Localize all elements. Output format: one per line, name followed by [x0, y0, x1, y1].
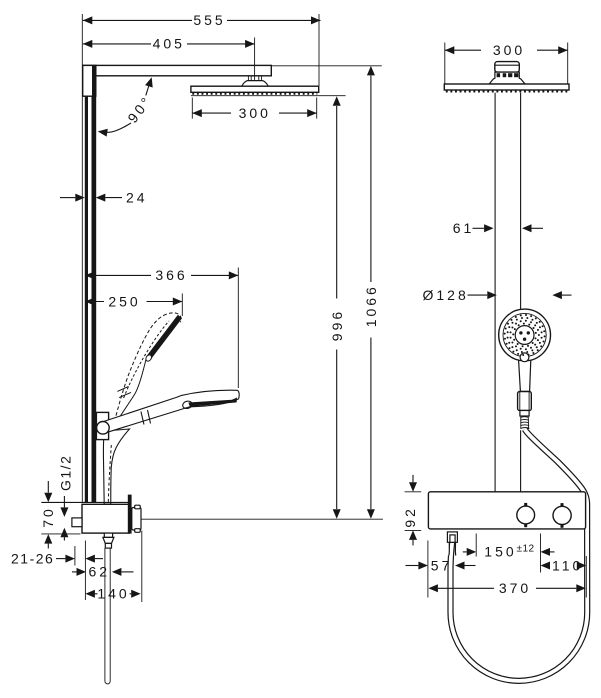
svg-text:21-26: 21-26	[11, 550, 54, 566]
svg-text:1066: 1066	[363, 284, 379, 327]
svg-text:70: 70	[40, 506, 56, 528]
svg-text:24: 24	[126, 189, 148, 205]
svg-text:300: 300	[493, 42, 525, 58]
svg-text:140: 140	[97, 586, 129, 602]
svg-text:±12: ±12	[517, 544, 535, 555]
svg-text:62: 62	[89, 564, 111, 580]
svg-text:61: 61	[453, 220, 475, 236]
svg-text:57: 57	[431, 557, 453, 573]
svg-text:366: 366	[155, 267, 187, 283]
svg-text:92: 92	[402, 506, 418, 528]
svg-text:555: 555	[193, 12, 225, 28]
svg-text:G1/2: G1/2	[58, 455, 74, 491]
svg-text:370: 370	[499, 580, 531, 596]
svg-text:300: 300	[239, 105, 271, 121]
svg-text:250: 250	[108, 293, 140, 309]
svg-text:996: 996	[329, 309, 345, 341]
svg-text:Ø128: Ø128	[423, 287, 469, 303]
svg-text:150: 150	[484, 544, 516, 560]
svg-text:405: 405	[153, 36, 185, 52]
